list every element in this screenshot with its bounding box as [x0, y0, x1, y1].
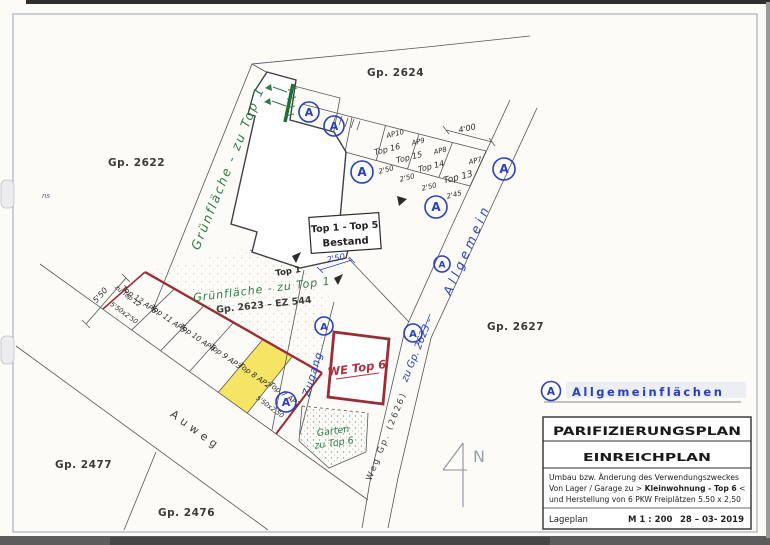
title-block-date: 28 – 03- 2019 [680, 515, 744, 525]
lageplan-canvas: ns [0, 0, 770, 545]
scan-edge-right [766, 2, 770, 538]
marker-letter: A [330, 120, 339, 133]
allgemein-marker: A [493, 158, 515, 180]
entrance-arrow-2 [334, 274, 343, 285]
dim-line-550 [82, 274, 130, 328]
dim-550-label: 5'50 [91, 286, 109, 305]
allgemein-marker: A [351, 161, 373, 183]
road-note-allgemein: Allgemein [439, 201, 493, 298]
stall-top-label: Top 13 [443, 169, 475, 186]
stall-dim-label: 2'45 [446, 189, 463, 201]
marker-letter: A [499, 162, 509, 176]
building-label-box: Top 1 - Top 5 Bestand [309, 213, 381, 254]
binder-tab-upper [1, 180, 14, 208]
parcel-label-2627: Gp. 2627 [487, 321, 544, 333]
stall-top-label: Top 16 [373, 142, 401, 157]
scan-edge-top [26, 0, 770, 4]
marker-letter: A [305, 106, 314, 119]
margin-mark: ns [42, 192, 50, 200]
road-note-zu: zu Gp. 2623 - [399, 316, 435, 384]
desc2-pre: Von Lager / Garage zu > [549, 484, 645, 493]
boundary-strip-cap [252, 64, 268, 73]
dim-400-label: 4'00 [458, 122, 477, 135]
stall-ap-label: AP7 [467, 155, 483, 166]
stall-dim-label: 2'50 [378, 164, 395, 176]
marker-letter: A [431, 200, 441, 214]
weg-label: Weg Gp. (2626) [365, 391, 410, 483]
desc2-bold: Kleinwohnung - Top 6 [645, 484, 737, 493]
upper-stall-labels: AP10 AP9 AP8 AP7 Top 16 Top 15 Top 14 To… [373, 122, 483, 201]
legend: A Allgemeinflächen [542, 382, 747, 403]
scanned-site-plan: ns [0, 0, 770, 545]
parcel-label-2477: Gp. 2477 [55, 459, 112, 471]
stall-ap-label: AP8 [432, 145, 448, 156]
title-block-desc2: Von Lager / Garage zu > Kleinwohnung - T… [549, 484, 746, 493]
marker-letter: A [439, 261, 446, 271]
auweg-label: Auweg [168, 408, 224, 454]
stall-ap-label: AP10 [385, 128, 406, 140]
parcel-label-2476: Gp. 2476 [158, 507, 215, 519]
north-arrow-lines [443, 443, 467, 507]
binder-tab-lower [1, 336, 14, 364]
title-block: PARIFIZIERUNGSPLAN EINREICHPLAN Umbau bz… [543, 417, 751, 529]
north-arrow: N [443, 443, 485, 507]
title-block-desc1: Umbau bzw. Änderung des Verwendungszweck… [549, 473, 739, 482]
desc2-post: < [737, 484, 746, 493]
parcel-branch-line [124, 452, 156, 530]
marker-letter: A [282, 396, 291, 409]
title-block-doctype: Lageplan [549, 515, 588, 525]
north-label: N [473, 447, 485, 466]
title-block-desc3: und Herstellung von 6 PKW Freiplätzen 5.… [549, 495, 741, 504]
legend-label: Allgemeinflächen [572, 385, 724, 399]
legend-marker-letter: A [547, 386, 556, 398]
allgemein-marker: A [434, 256, 450, 272]
stall-dim-label: 2'50 [421, 181, 438, 193]
parcel-label-2622: Gp. 2622 [108, 157, 165, 169]
title-block-scale: M 1 : 200 [628, 515, 672, 525]
marker-letter: A [409, 329, 417, 340]
allgemein-marker: A [425, 196, 447, 218]
stall-ap-label: AP9 [410, 136, 426, 147]
title-block-subtitle: EINREICHPLAN [583, 452, 711, 464]
marker-letter: A [357, 165, 367, 179]
marker-letter: A [320, 322, 328, 333]
stall-dim-label: 2'50 [399, 172, 416, 184]
parcel-label-2624: Gp. 2624 [367, 67, 424, 79]
courtyard-arrow [397, 196, 407, 206]
title-block-title: PARIFIZIERUNGSPLAN [553, 424, 741, 438]
scan-edge-bottom-dark [110, 537, 550, 545]
allgemein-marker: A [299, 102, 319, 122]
courtyard-line [348, 258, 409, 322]
road-auweg-sw-edge [16, 346, 268, 530]
